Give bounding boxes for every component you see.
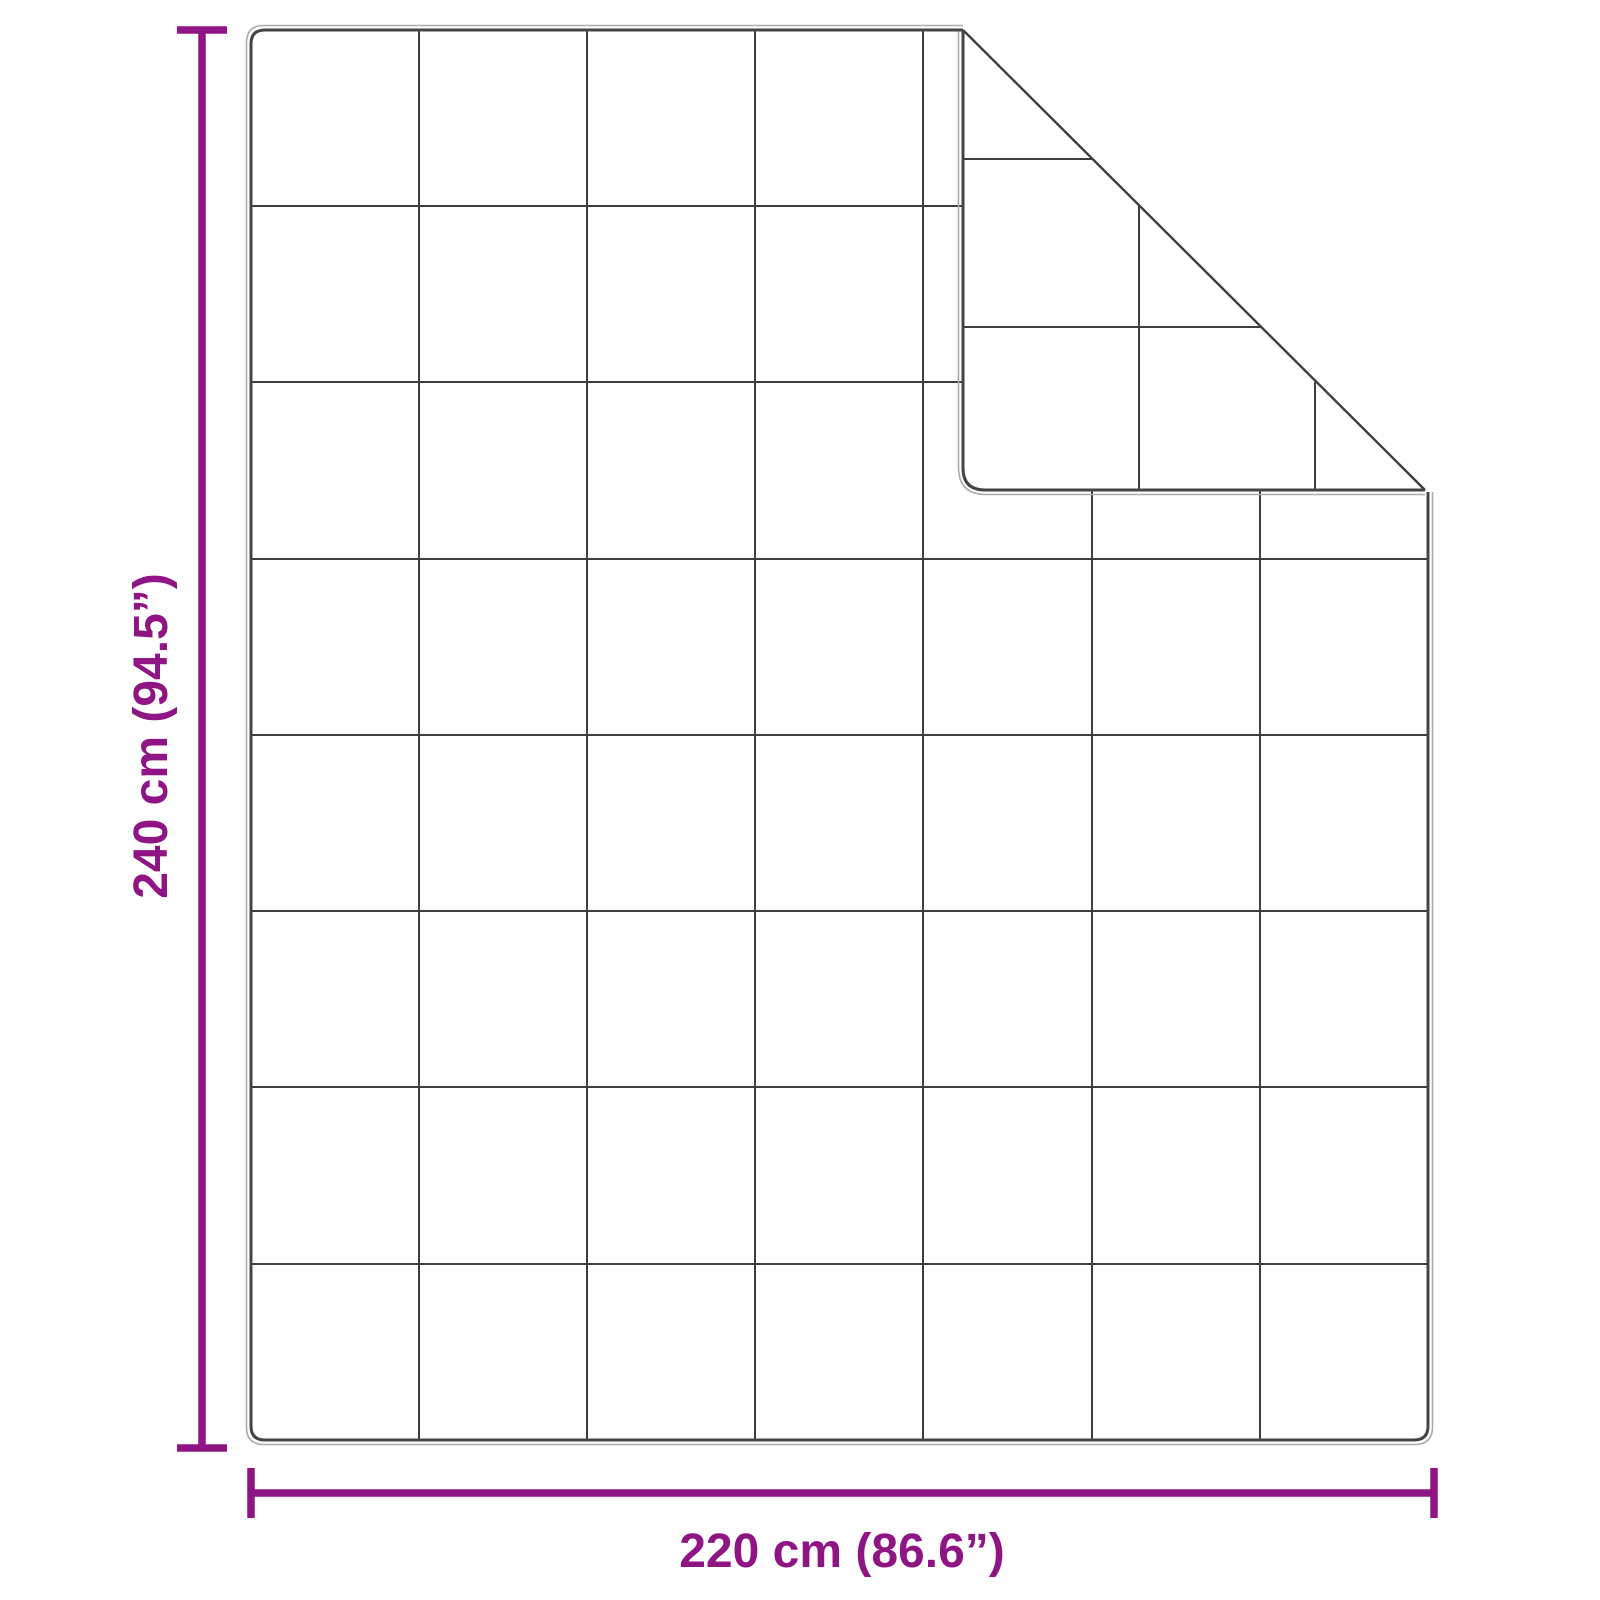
blanket-drawing (0, 0, 1600, 1600)
height-dimension-label: 240 cm (94.5”) (122, 486, 182, 986)
blanket-dimension-diagram: 240 cm (94.5”) 220 cm (86.6”) (0, 0, 1600, 1600)
width-dimension-label: 220 cm (86.6”) (592, 1522, 1092, 1582)
width-dimension-line (251, 1468, 1434, 1518)
height-dimension-line (177, 30, 227, 1448)
